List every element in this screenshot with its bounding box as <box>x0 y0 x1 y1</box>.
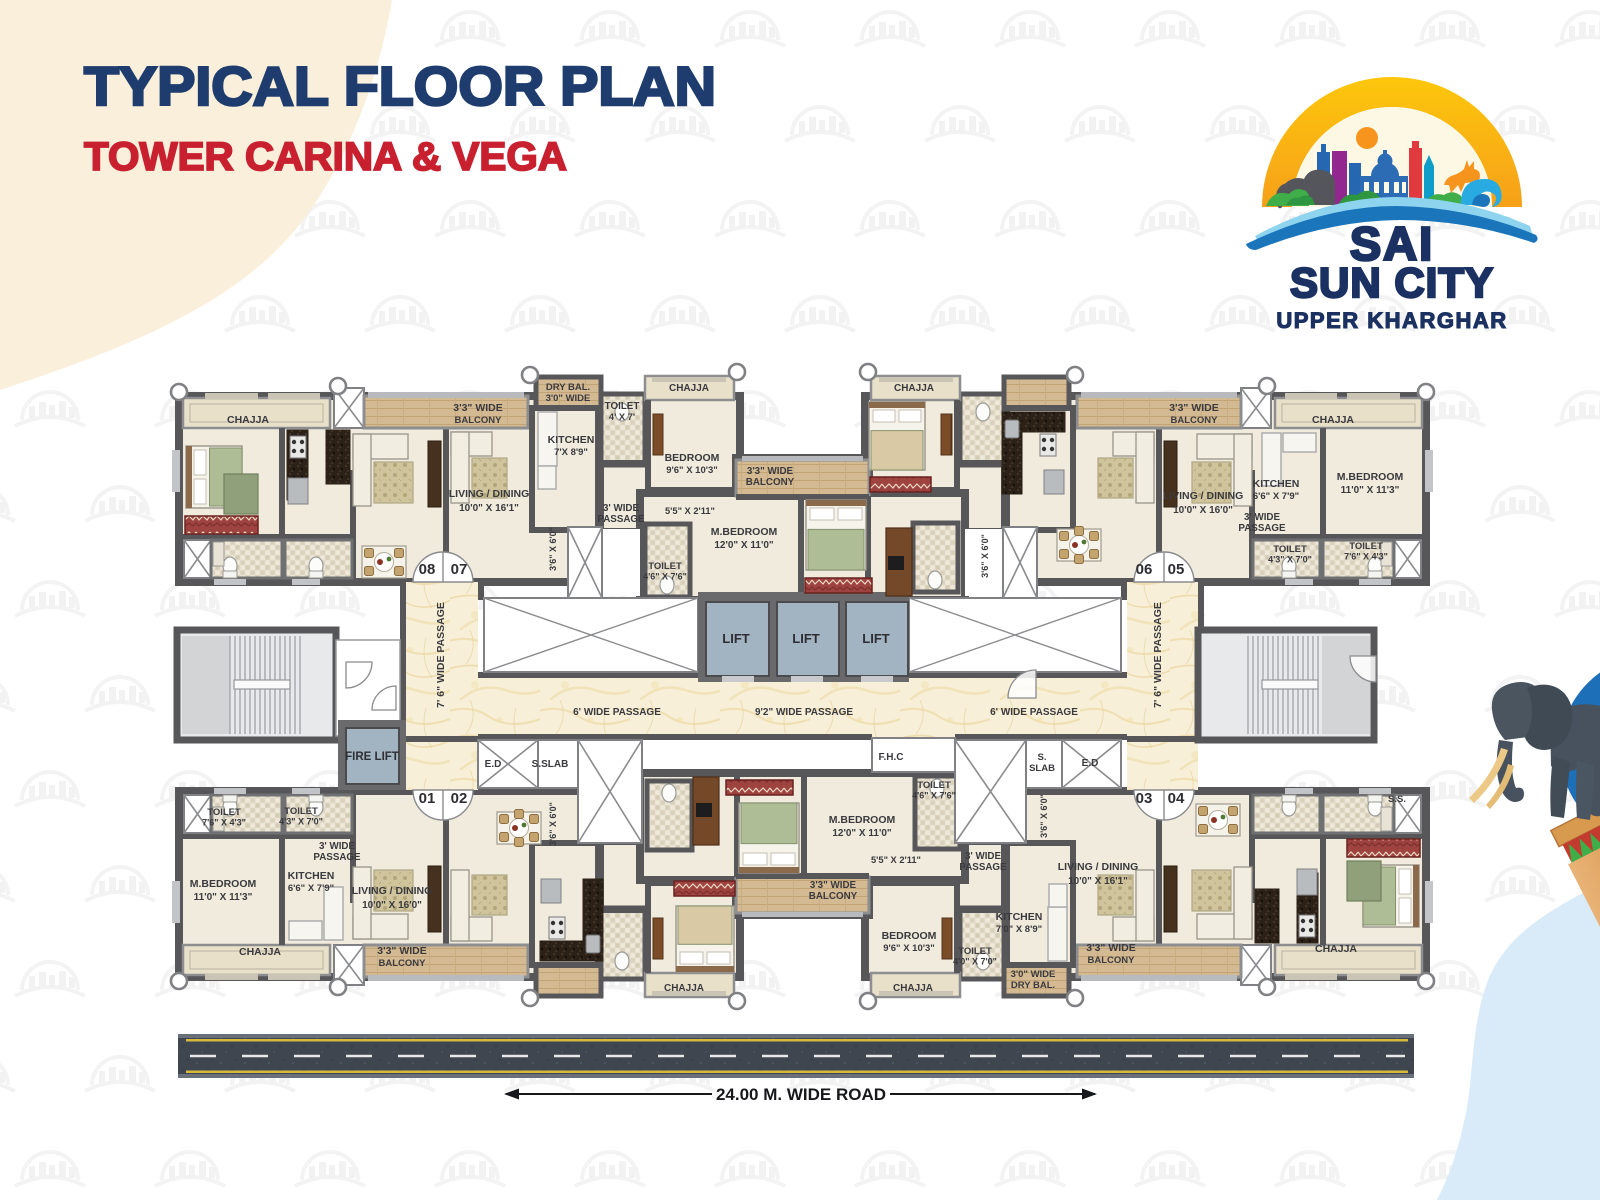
svg-text:11'0" X 11'3": 11'0" X 11'3" <box>194 892 253 903</box>
svg-text:S.S.: S.S. <box>1388 794 1406 805</box>
svg-text:6'6" X 7'9": 6'6" X 7'9" <box>288 883 334 894</box>
svg-text:UPPER KHARGHAR: UPPER KHARGHAR <box>1276 308 1507 333</box>
svg-text:4'3" X 7'0": 4'3" X 7'0" <box>279 817 323 827</box>
svg-text:BALCONY: BALCONY <box>1171 415 1219 426</box>
svg-text:SUN CITY: SUN CITY <box>1290 259 1494 306</box>
svg-text:KITCHEN: KITCHEN <box>288 870 335 882</box>
svg-text:9'6" X 10'3": 9'6" X 10'3" <box>883 943 935 954</box>
svg-text:CHAJJA: CHAJJA <box>894 383 934 394</box>
svg-text:PASSAGE: PASSAGE <box>1238 523 1286 534</box>
svg-text:M.BEDROOM: M.BEDROOM <box>1337 471 1404 483</box>
svg-text:7' 6" WIDE PASSAGE: 7' 6" WIDE PASSAGE <box>1152 602 1164 708</box>
svg-text:CHAJJA: CHAJJA <box>239 946 281 958</box>
svg-text:7'6" X 4'3": 7'6" X 4'3" <box>1344 552 1388 562</box>
svg-text:10'0" X 16'0": 10'0" X 16'0" <box>362 900 422 911</box>
svg-text:TOWER CARINA & VEGA: TOWER CARINA & VEGA <box>84 135 567 179</box>
svg-text:BALCONY: BALCONY <box>809 891 858 902</box>
svg-text:CHAJJA: CHAJJA <box>669 383 709 394</box>
svg-text:LIFT: LIFT <box>722 631 749 646</box>
svg-text:KITCHEN: KITCHEN <box>1253 478 1300 490</box>
svg-text:6' WIDE PASSAGE: 6' WIDE PASSAGE <box>990 707 1078 718</box>
svg-text:PASSAGE: PASSAGE <box>313 852 361 863</box>
svg-text:DRY BAL.: DRY BAL. <box>1011 980 1055 991</box>
svg-text:5'5" X 2'11": 5'5" X 2'11" <box>871 855 921 865</box>
svg-text:BALCONY: BALCONY <box>379 958 427 969</box>
svg-text:PASSAGE: PASSAGE <box>597 514 645 525</box>
svg-text:7' 6" WIDE PASSAGE: 7' 6" WIDE PASSAGE <box>435 602 447 708</box>
svg-text:7'0" X 8'9": 7'0" X 8'9" <box>996 924 1042 935</box>
svg-text:12'0" X 11'0": 12'0" X 11'0" <box>714 540 774 551</box>
svg-text:10'0" X 16'1": 10'0" X 16'1" <box>1068 876 1128 887</box>
svg-text:TOILET: TOILET <box>958 946 992 957</box>
svg-text:4' X 7': 4' X 7' <box>609 412 635 422</box>
svg-text:TOILET: TOILET <box>1349 541 1383 552</box>
svg-text:TOILET: TOILET <box>207 807 241 818</box>
svg-text:01: 01 <box>419 790 436 807</box>
svg-text:CHAJJA: CHAJJA <box>227 414 269 426</box>
svg-text:TOILET: TOILET <box>648 561 682 572</box>
svg-text:LIFT: LIFT <box>862 631 889 646</box>
svg-text:CHAJJA: CHAJJA <box>1315 943 1357 955</box>
svg-text:3' WIDE: 3' WIDE <box>965 851 1002 862</box>
svg-text:3'6" X 6'0": 3'6" X 6'0" <box>1039 794 1049 838</box>
svg-text:3'0" WIDE: 3'0" WIDE <box>546 393 591 404</box>
svg-text:M.BEDROOM: M.BEDROOM <box>711 526 778 538</box>
svg-text:08: 08 <box>419 561 436 578</box>
svg-text:3' WIDE: 3' WIDE <box>319 841 356 852</box>
svg-text:3'3" WIDE: 3'3" WIDE <box>1169 402 1219 414</box>
svg-text:3'3" WIDE: 3'3" WIDE <box>747 466 794 477</box>
svg-text:03: 03 <box>1136 790 1153 807</box>
svg-text:4'6" X 7'6": 4'6" X 7'6" <box>643 572 687 582</box>
svg-text:9'6" X 10'3": 9'6" X 10'3" <box>666 465 718 476</box>
svg-text:04: 04 <box>1168 790 1185 807</box>
svg-text:M.BEDROOM: M.BEDROOM <box>829 814 896 826</box>
svg-text:5'5" X 2'11": 5'5" X 2'11" <box>665 506 715 516</box>
svg-text:7'X 8'9": 7'X 8'9" <box>554 447 588 458</box>
svg-text:F.H.C: F.H.C <box>879 752 904 763</box>
svg-text:9'2" WIDE PASSAGE: 9'2" WIDE PASSAGE <box>755 707 853 718</box>
svg-text:LIVING / DINING: LIVING / DINING <box>1058 861 1139 873</box>
svg-text:3'6" X 6'0": 3'6" X 6'0" <box>548 802 558 846</box>
svg-text:TYPICAL FLOOR PLAN: TYPICAL FLOOR PLAN <box>84 55 716 117</box>
svg-text:BEDROOM: BEDROOM <box>665 452 720 464</box>
svg-text:PASSAGE: PASSAGE <box>959 862 1007 873</box>
svg-text:24.00 M. WIDE ROAD: 24.00 M. WIDE ROAD <box>716 1085 886 1104</box>
svg-text:10'0" X 16'0": 10'0" X 16'0" <box>1173 505 1233 516</box>
svg-text:11'0" X 11'3": 11'0" X 11'3" <box>1341 485 1400 496</box>
svg-text:3' WIDE: 3' WIDE <box>603 503 640 514</box>
svg-text:3'0" WIDE: 3'0" WIDE <box>1011 969 1056 980</box>
svg-text:E.D: E.D <box>1082 758 1099 769</box>
svg-text:LIFT: LIFT <box>792 631 819 646</box>
svg-text:BEDROOM: BEDROOM <box>882 930 937 942</box>
svg-text:LIVING / DINING: LIVING / DINING <box>1163 490 1244 502</box>
svg-text:LIVING / DINING: LIVING / DINING <box>352 885 433 897</box>
svg-text:BALCONY: BALCONY <box>746 477 795 488</box>
svg-text:07: 07 <box>451 561 468 578</box>
svg-text:4'3" X 7'0": 4'3" X 7'0" <box>1268 555 1312 565</box>
svg-text:3'3" WIDE: 3'3" WIDE <box>453 402 503 414</box>
svg-text:7'6" X 4'3": 7'6" X 4'3" <box>202 818 246 828</box>
svg-text:BALCONY: BALCONY <box>1088 955 1136 966</box>
svg-text:TOILET: TOILET <box>605 401 640 412</box>
svg-text:S.SLAB: S.SLAB <box>532 759 569 770</box>
svg-text:TOILET: TOILET <box>1273 544 1307 555</box>
svg-text:KITCHEN: KITCHEN <box>996 911 1043 923</box>
svg-text:KITCHEN: KITCHEN <box>548 434 595 446</box>
svg-text:10'0" X 16'1": 10'0" X 16'1" <box>459 503 519 514</box>
svg-text:E.D: E.D <box>485 759 502 770</box>
svg-text:M.BEDROOM: M.BEDROOM <box>190 878 257 890</box>
svg-text:02: 02 <box>451 790 468 807</box>
svg-text:S.: S. <box>1038 752 1047 763</box>
svg-text:3' WIDE: 3' WIDE <box>1244 512 1281 523</box>
svg-text:DRY BAL.: DRY BAL. <box>546 382 590 393</box>
svg-text:4'0" X 7'0": 4'0" X 7'0" <box>953 957 997 967</box>
svg-text:CHAJJA: CHAJJA <box>1312 414 1354 426</box>
svg-text:4'6" X 7'6": 4'6" X 7'6" <box>912 791 956 801</box>
svg-text:FIRE LIFT: FIRE LIFT <box>345 751 399 763</box>
svg-text:3'3" WIDE: 3'3" WIDE <box>810 880 857 891</box>
svg-text:06: 06 <box>1136 561 1153 578</box>
svg-text:LIVING / DINING: LIVING / DINING <box>449 488 530 500</box>
svg-text:3'3" WIDE: 3'3" WIDE <box>377 945 427 957</box>
svg-text:6'6" X 7'9": 6'6" X 7'9" <box>1253 491 1299 502</box>
svg-text:TOILET: TOILET <box>917 780 951 791</box>
svg-text:3'3" WIDE: 3'3" WIDE <box>1086 942 1136 954</box>
svg-text:05: 05 <box>1168 561 1185 578</box>
svg-text:12'0" X 11'0": 12'0" X 11'0" <box>832 828 892 839</box>
svg-text:BALCONY: BALCONY <box>455 415 503 426</box>
svg-text:3'6" X 6'0": 3'6" X 6'0" <box>980 534 990 578</box>
svg-text:SLAB: SLAB <box>1029 763 1055 774</box>
svg-text:CHAJJA: CHAJJA <box>664 983 704 994</box>
svg-text:6' WIDE PASSAGE: 6' WIDE PASSAGE <box>573 707 661 718</box>
svg-text:3'6" X 6'0": 3'6" X 6'0" <box>548 527 558 571</box>
svg-text:CHAJJA: CHAJJA <box>893 983 933 994</box>
svg-text:TOILET: TOILET <box>284 806 318 817</box>
